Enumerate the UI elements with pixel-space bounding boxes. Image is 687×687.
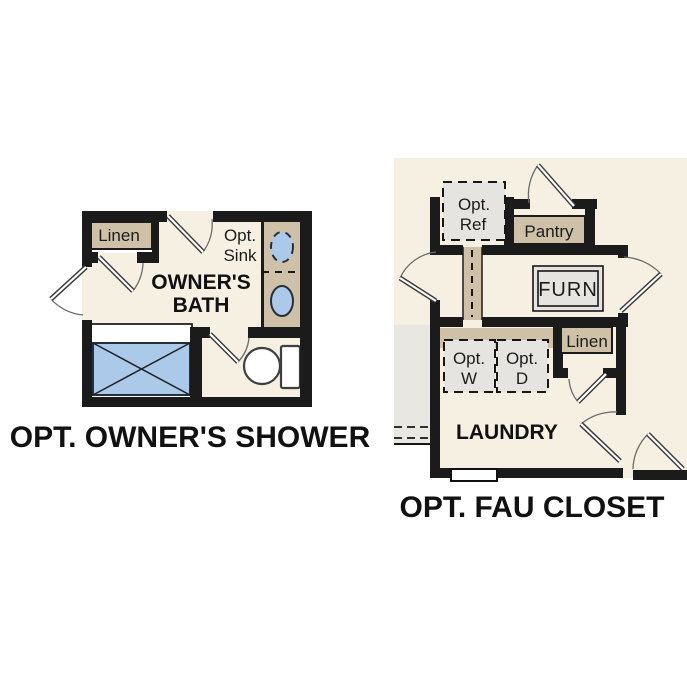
vanity-edge-line xyxy=(261,221,264,327)
room-label-bath: BATH xyxy=(173,294,230,317)
furn-label: FURN xyxy=(538,279,598,301)
linen-label-right: Linen xyxy=(566,332,608,351)
opt-d-label-line1: Opt. xyxy=(506,349,538,368)
left-plan-title: OPT. OWNER'S SHOWER xyxy=(10,421,371,454)
opt-w-label-line2: W xyxy=(461,369,477,388)
room-label-owners: OWNER'S xyxy=(151,271,251,294)
opt-sink-label-line2: Sink xyxy=(223,246,257,265)
linen-label: Linen xyxy=(98,226,140,245)
opt-d-label-line2: D xyxy=(516,369,528,388)
pantry-label: Pantry xyxy=(524,222,574,241)
room-label-laundry: LAUNDRY xyxy=(456,421,558,444)
stairs-icon xyxy=(394,325,431,445)
opt-ref-label-line2: Ref xyxy=(460,215,487,234)
owners-shower-plan: Linen Opt. Sink OWNER'S BATH OPT. OWNER'… xyxy=(10,211,371,454)
wall-chase xyxy=(463,247,482,320)
toilet-tank xyxy=(281,346,300,388)
floorplan-graphic: Linen Opt. Sink OWNER'S BATH OPT. OWNER'… xyxy=(0,0,687,687)
floorplan-canvas: Linen Opt. Sink OWNER'S BATH OPT. OWNER'… xyxy=(0,0,687,687)
hall-floor-left xyxy=(394,158,430,325)
toilet-icon xyxy=(244,346,300,388)
right-plan-title: OPT. FAU CLOSET xyxy=(399,491,664,524)
door-swing-icon xyxy=(51,299,83,315)
fau-closet-plan: Opt. Ref Pantry FURN Linen Opt. W Opt. D… xyxy=(394,158,687,524)
sink-icon xyxy=(271,286,293,316)
opt-sink-label-line1: Opt. xyxy=(224,226,256,245)
toilet-bowl xyxy=(244,348,280,384)
opt-w-label-line1: Opt. xyxy=(453,349,485,368)
opt-ref-label-line1: Opt. xyxy=(458,195,490,214)
window-icon xyxy=(451,469,497,481)
optional-sink-icon xyxy=(271,232,293,262)
